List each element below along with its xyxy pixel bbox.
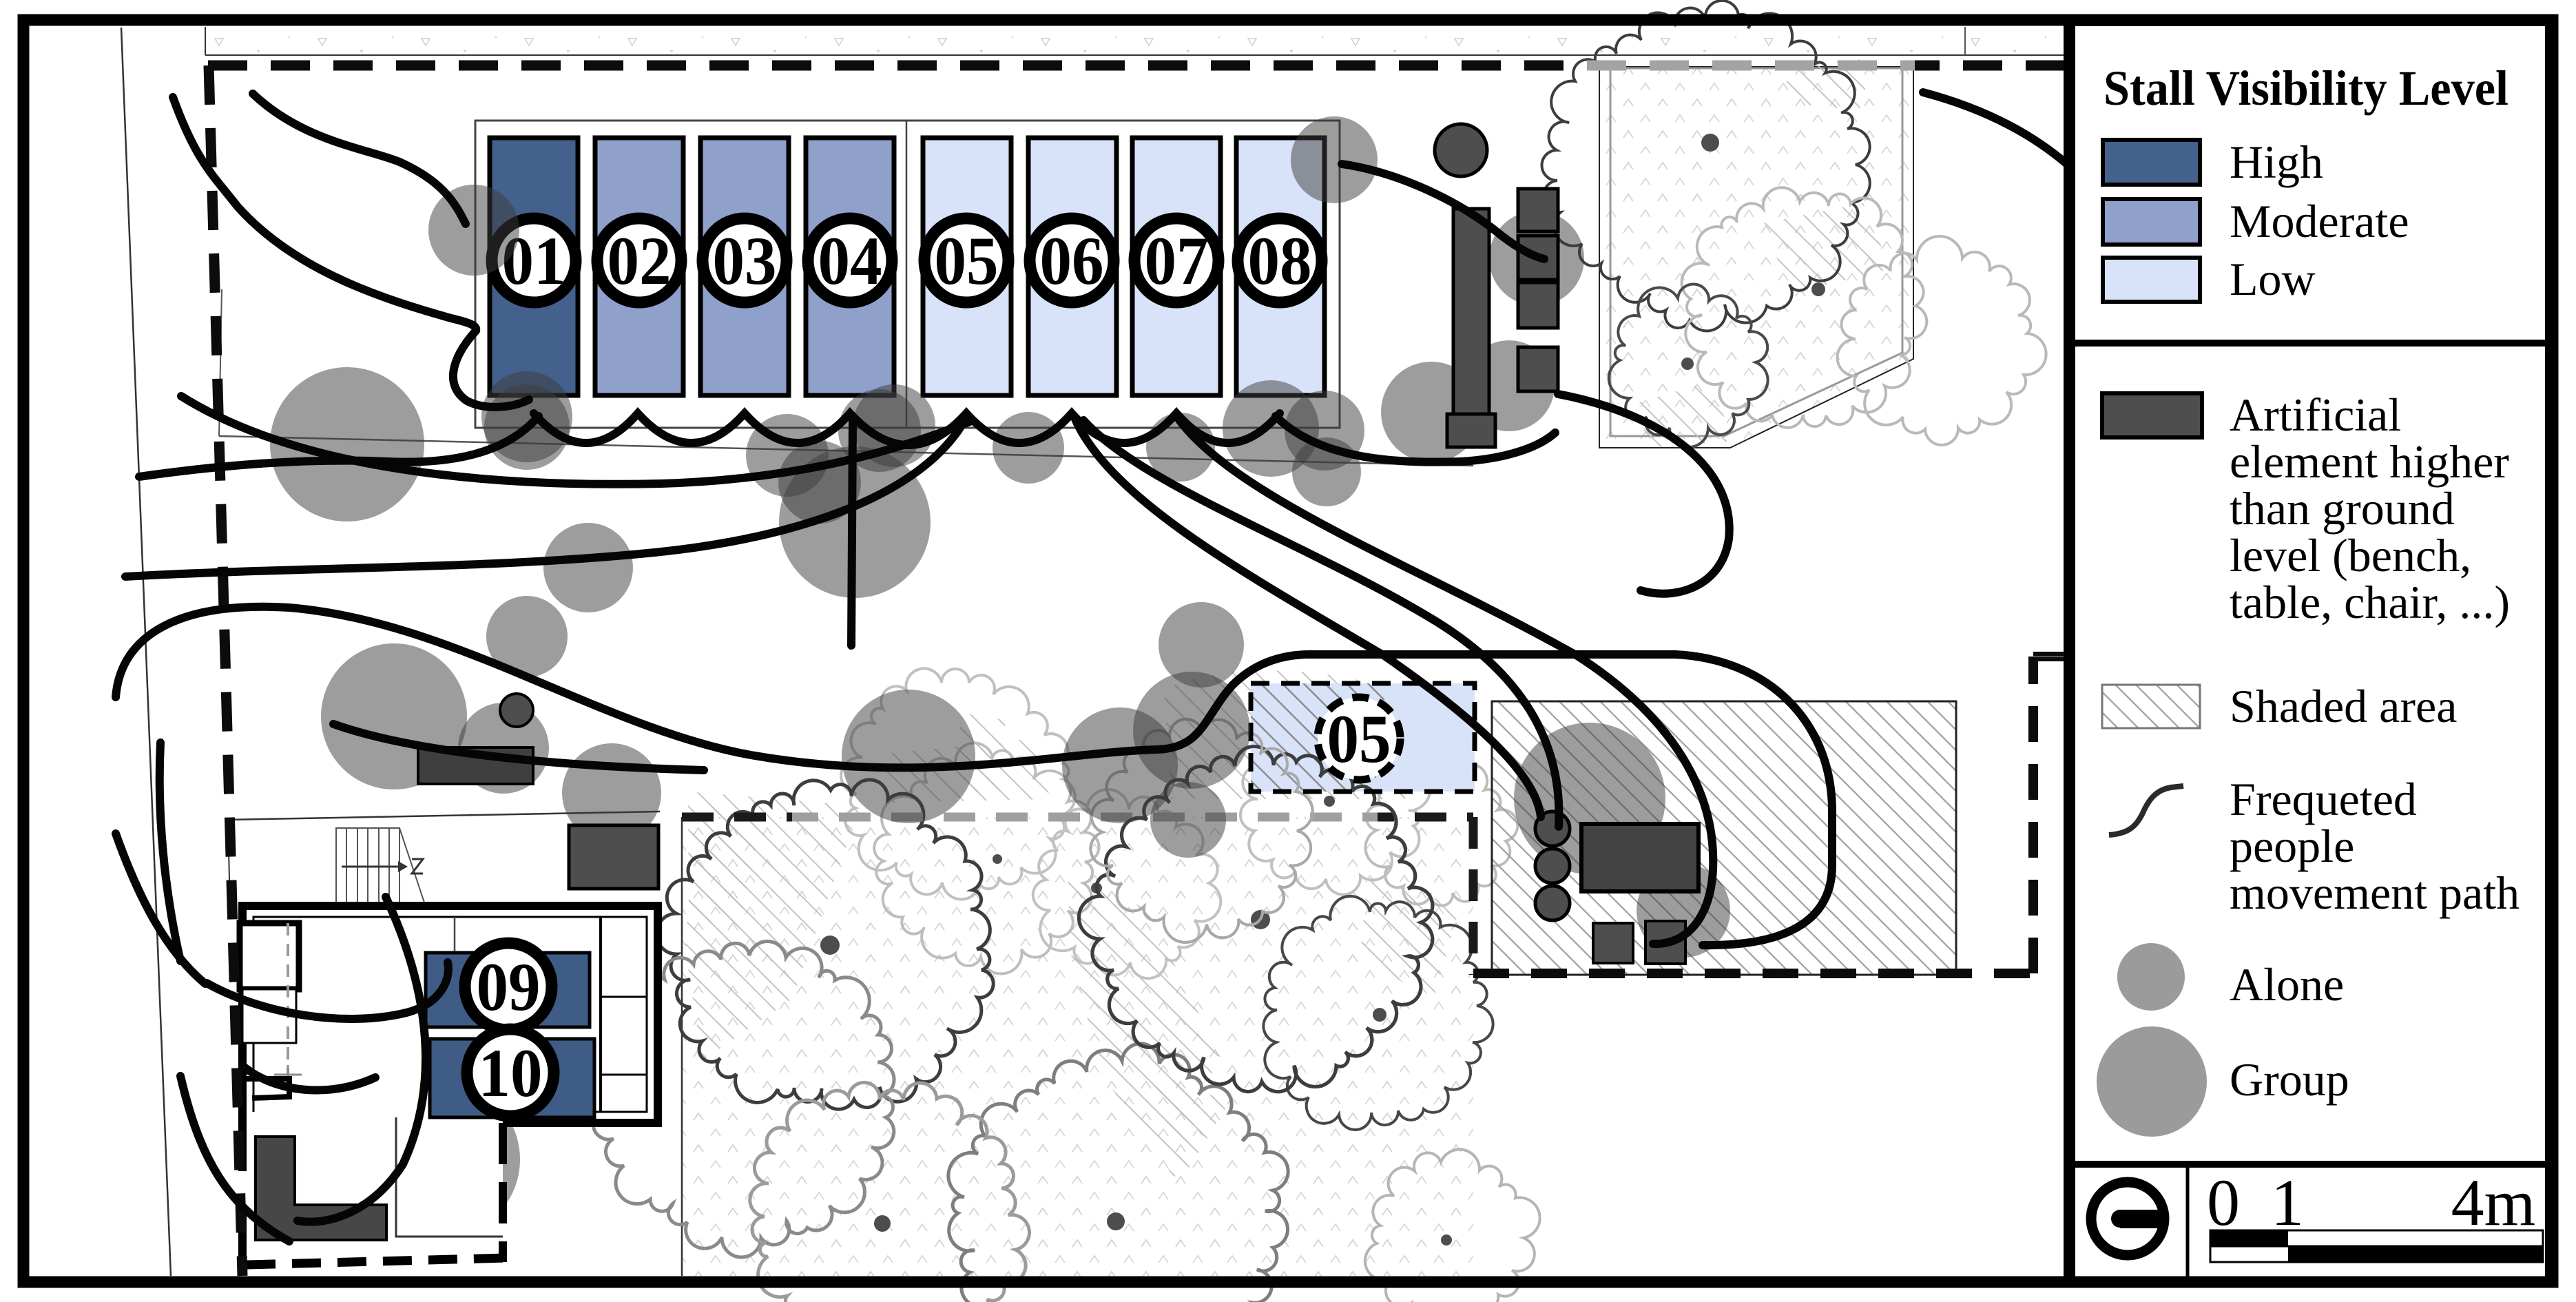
svg-text:Alone: Alone [2230,958,2344,1011]
svg-text:08: 08 [1248,223,1312,299]
svg-text:05: 05 [1327,701,1391,777]
svg-text:Low: Low [2230,253,2316,305]
svg-text:4m: 4m [2451,1166,2536,1239]
svg-text:09: 09 [477,949,541,1025]
svg-text:1: 1 [2271,1166,2304,1239]
svg-text:06: 06 [1040,223,1104,299]
svg-text:03: 03 [713,223,777,299]
svg-text:04: 04 [818,223,882,299]
svg-text:people: people [2230,820,2354,872]
svg-text:10: 10 [479,1035,543,1111]
svg-text:Artificial: Artificial [2230,389,2401,441]
svg-text:than ground: than ground [2230,482,2455,535]
svg-text:Stall Visibility Level: Stall Visibility Level [2104,61,2509,116]
svg-text:05: 05 [935,223,999,299]
svg-text:element higher: element higher [2230,435,2509,488]
svg-text:movement path: movement path [2230,867,2520,919]
svg-text:Frequeted: Frequeted [2230,773,2417,825]
svg-text:Moderate: Moderate [2230,195,2409,247]
svg-text:02: 02 [607,223,672,299]
svg-text:07: 07 [1145,223,1209,299]
svg-text:High: High [2230,136,2323,188]
svg-text:table, chair, ...): table, chair, ...) [2230,576,2510,628]
svg-text:Shaded area: Shaded area [2230,680,2457,732]
svg-text:level (bench,: level (bench, [2230,529,2471,581]
svg-text:0: 0 [2207,1166,2240,1239]
svg-text:Group: Group [2230,1053,2349,1106]
